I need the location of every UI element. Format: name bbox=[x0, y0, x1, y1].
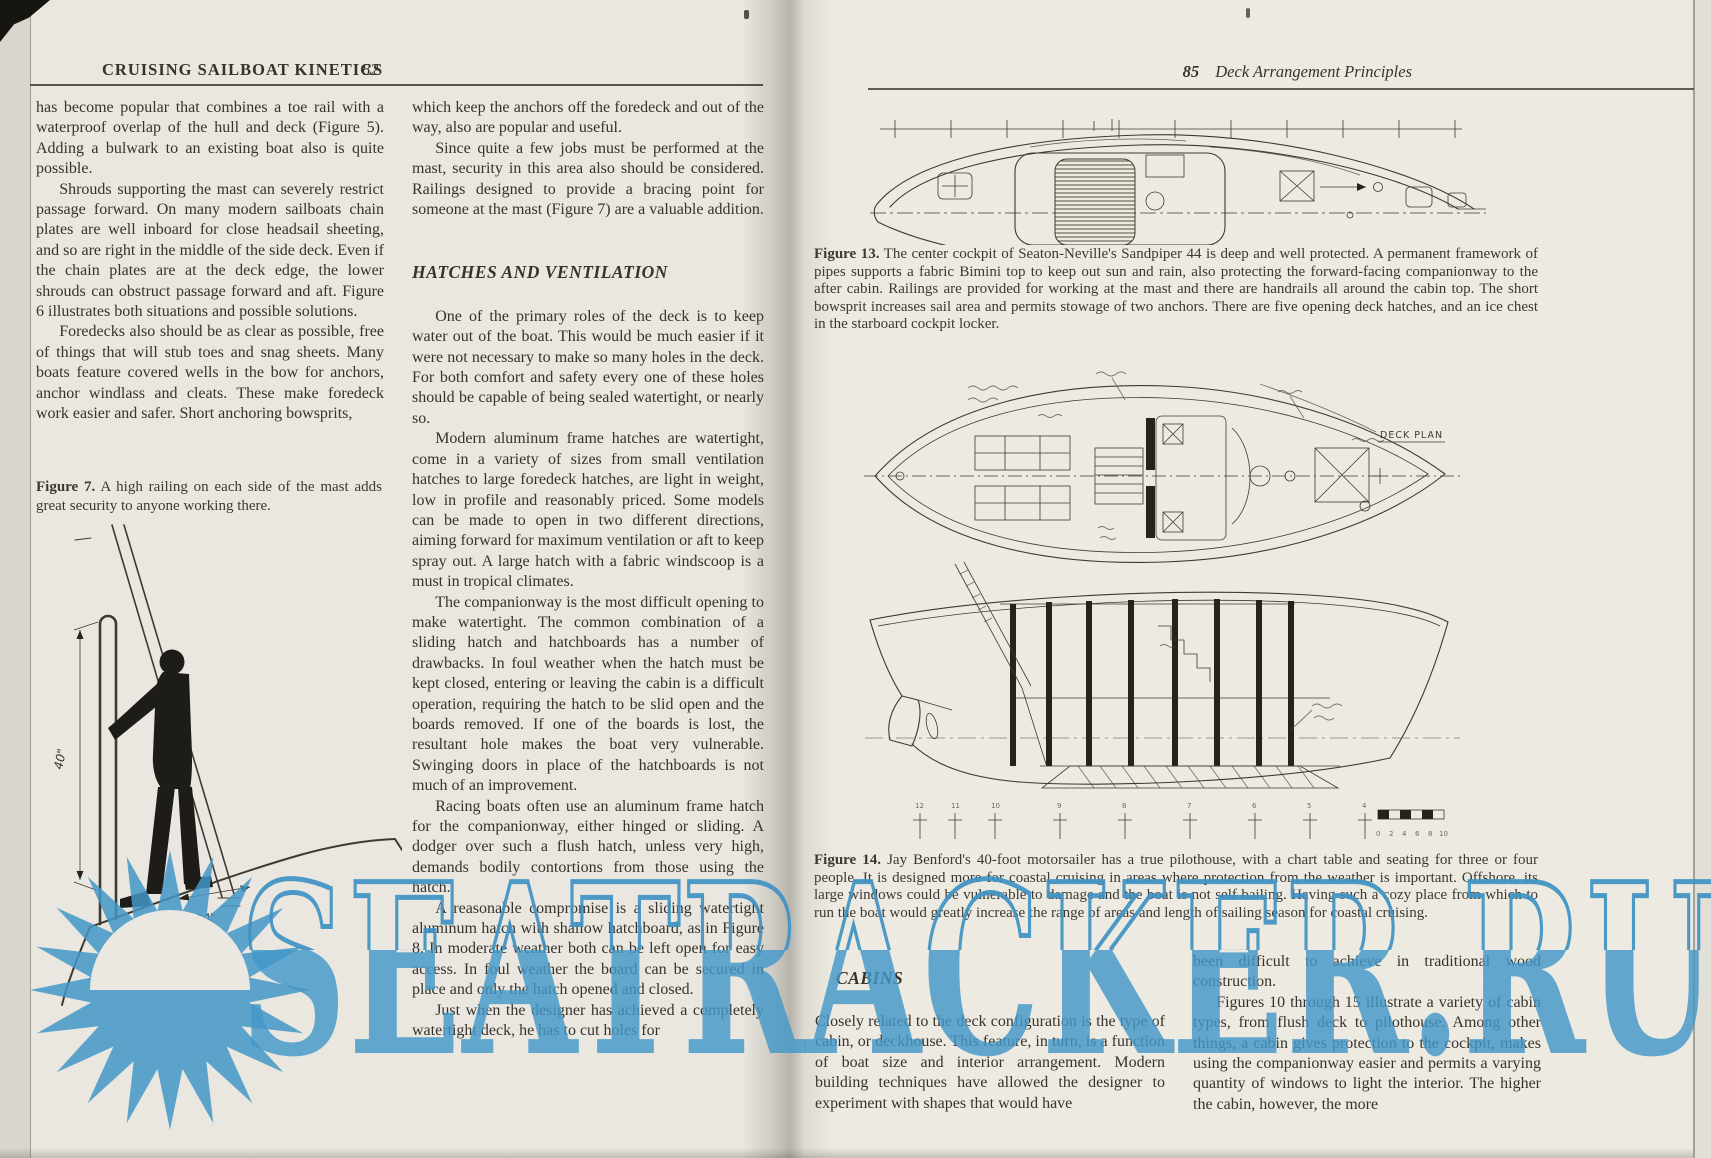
station-number: 8 bbox=[1122, 802, 1126, 810]
scale-number: 10 bbox=[1439, 830, 1448, 838]
body-paragraph: The companionway is the most difficult o… bbox=[412, 593, 764, 797]
hull-plan-outline bbox=[870, 135, 1486, 245]
station-number: 12 bbox=[915, 802, 924, 810]
scan-right-edge bbox=[1693, 0, 1711, 1158]
scale-number: 2 bbox=[1389, 830, 1393, 838]
book-spread: CRUISING SAILBOAT KINETICS 82 has become… bbox=[0, 0, 1711, 1158]
person-silhouette bbox=[108, 650, 213, 909]
body-paragraph: which keep the anchors off the foredeck … bbox=[412, 98, 764, 139]
station-number: 7 bbox=[1187, 802, 1191, 810]
station-number: 9 bbox=[1057, 802, 1061, 810]
station-number: 6 bbox=[1252, 802, 1257, 810]
station-number: 10 bbox=[991, 802, 1000, 810]
station-number: 4 bbox=[1362, 802, 1367, 810]
left-header-rule bbox=[30, 84, 763, 86]
deck-plan: DECK PLAN bbox=[864, 372, 1460, 562]
station-number: 11 bbox=[951, 802, 960, 810]
figure7-drawing: 40" 24" bbox=[50, 522, 402, 1027]
deck-outline bbox=[62, 839, 402, 1005]
dimension-40: 40" bbox=[51, 622, 98, 890]
body-paragraph: Modern aluminum frame hatches are watert… bbox=[412, 429, 764, 592]
body-paragraph: has become popular that combines a toe r… bbox=[36, 98, 384, 180]
figure14-caption: Figure 14. Jay Benford's 40-foot motorsa… bbox=[814, 852, 1538, 922]
scan-speck bbox=[744, 10, 749, 19]
left-page-title: CRUISING SAILBOAT KINETICS bbox=[102, 60, 383, 80]
dim-24-label: 24" bbox=[194, 910, 217, 927]
figure13-caption: Figure 13. The center cockpit of Seaton-… bbox=[814, 246, 1538, 334]
section-heading-hatches: HATCHES AND VENTILATION bbox=[412, 262, 764, 282]
right-page-title: Deck Arrangement Principles bbox=[1215, 62, 1412, 81]
scale-number: 0 bbox=[1376, 830, 1380, 838]
body-paragraph: Foredecks also should be as clear as pos… bbox=[36, 322, 384, 424]
body-paragraph: Shrouds supporting the mast can severely… bbox=[36, 180, 384, 323]
right-header-rule bbox=[868, 88, 1694, 90]
scale-number: 8 bbox=[1428, 830, 1432, 838]
figure13-drawing bbox=[850, 95, 1498, 245]
figure13-label: Figure 13. bbox=[814, 246, 879, 262]
mast-railing bbox=[100, 616, 116, 924]
body-paragraph: Figures 10 through 15 illustrate a varie… bbox=[1193, 993, 1541, 1115]
station-ticks: 12 11 10 9 8 7 6 5 4 bbox=[913, 802, 1372, 839]
right-page-header: 85 Deck Arrangement Principles bbox=[1000, 62, 1412, 82]
station-number: 5 bbox=[1307, 802, 1311, 810]
body-paragraph: Racing boats often use an aluminum frame… bbox=[412, 797, 764, 899]
section-heading-cabins: CABINS bbox=[836, 968, 903, 989]
figure14-label: Figure 14. bbox=[814, 852, 881, 868]
deck-plan-label: DECK PLAN bbox=[1380, 430, 1443, 441]
scan-speck bbox=[1246, 8, 1250, 18]
mast-profile bbox=[955, 562, 1046, 764]
figure7-caption: Figure 7. A high railing on each side of… bbox=[36, 478, 382, 515]
right-page-cabins-column-2: been difficult to achieve in traditional… bbox=[1193, 952, 1541, 1115]
body-paragraph: been difficult to achieve in traditional… bbox=[1193, 952, 1541, 993]
left-page-number: 82 bbox=[362, 60, 379, 80]
body-paragraph: One of the primary roles of the deck is … bbox=[412, 307, 764, 429]
right-page-cabins-column-1: Closely related to the deck configuratio… bbox=[815, 1012, 1165, 1114]
bulkheads bbox=[1010, 599, 1294, 766]
sketch-tick bbox=[75, 538, 91, 540]
body-paragraph: Closely related to the deck configuratio… bbox=[815, 1012, 1165, 1114]
left-page-column-1: has become popular that combines a toe r… bbox=[36, 98, 384, 425]
scale-number: 6 bbox=[1415, 830, 1420, 838]
companionway-steps bbox=[1158, 626, 1210, 682]
body-paragraph: Just when the designer has achieved a co… bbox=[412, 1001, 764, 1042]
profile-view: 12 11 10 9 8 7 6 5 4 0 2 4 6 8 bbox=[865, 562, 1460, 839]
scan-left-edge bbox=[0, 0, 31, 1158]
figure14-drawing: DECK PLAN bbox=[860, 358, 1465, 850]
scan-bottom-edge bbox=[0, 1148, 1711, 1158]
left-page-column-2: which keep the anchors off the foredeck … bbox=[412, 98, 764, 1041]
scale-bar: 0 2 4 6 8 10 bbox=[1376, 810, 1448, 838]
body-paragraph: A reasonable compromise is a sliding wat… bbox=[412, 899, 764, 1001]
dim-40-label: 40" bbox=[51, 747, 69, 770]
scale-number: 4 bbox=[1402, 830, 1407, 838]
station-grid bbox=[880, 120, 1462, 138]
deck-structures bbox=[938, 119, 1466, 245]
body-paragraph: Since quite a few jobs must be performed… bbox=[412, 139, 764, 221]
figure7-label: Figure 7. bbox=[36, 479, 95, 495]
right-page-number: 85 bbox=[1183, 62, 1200, 81]
